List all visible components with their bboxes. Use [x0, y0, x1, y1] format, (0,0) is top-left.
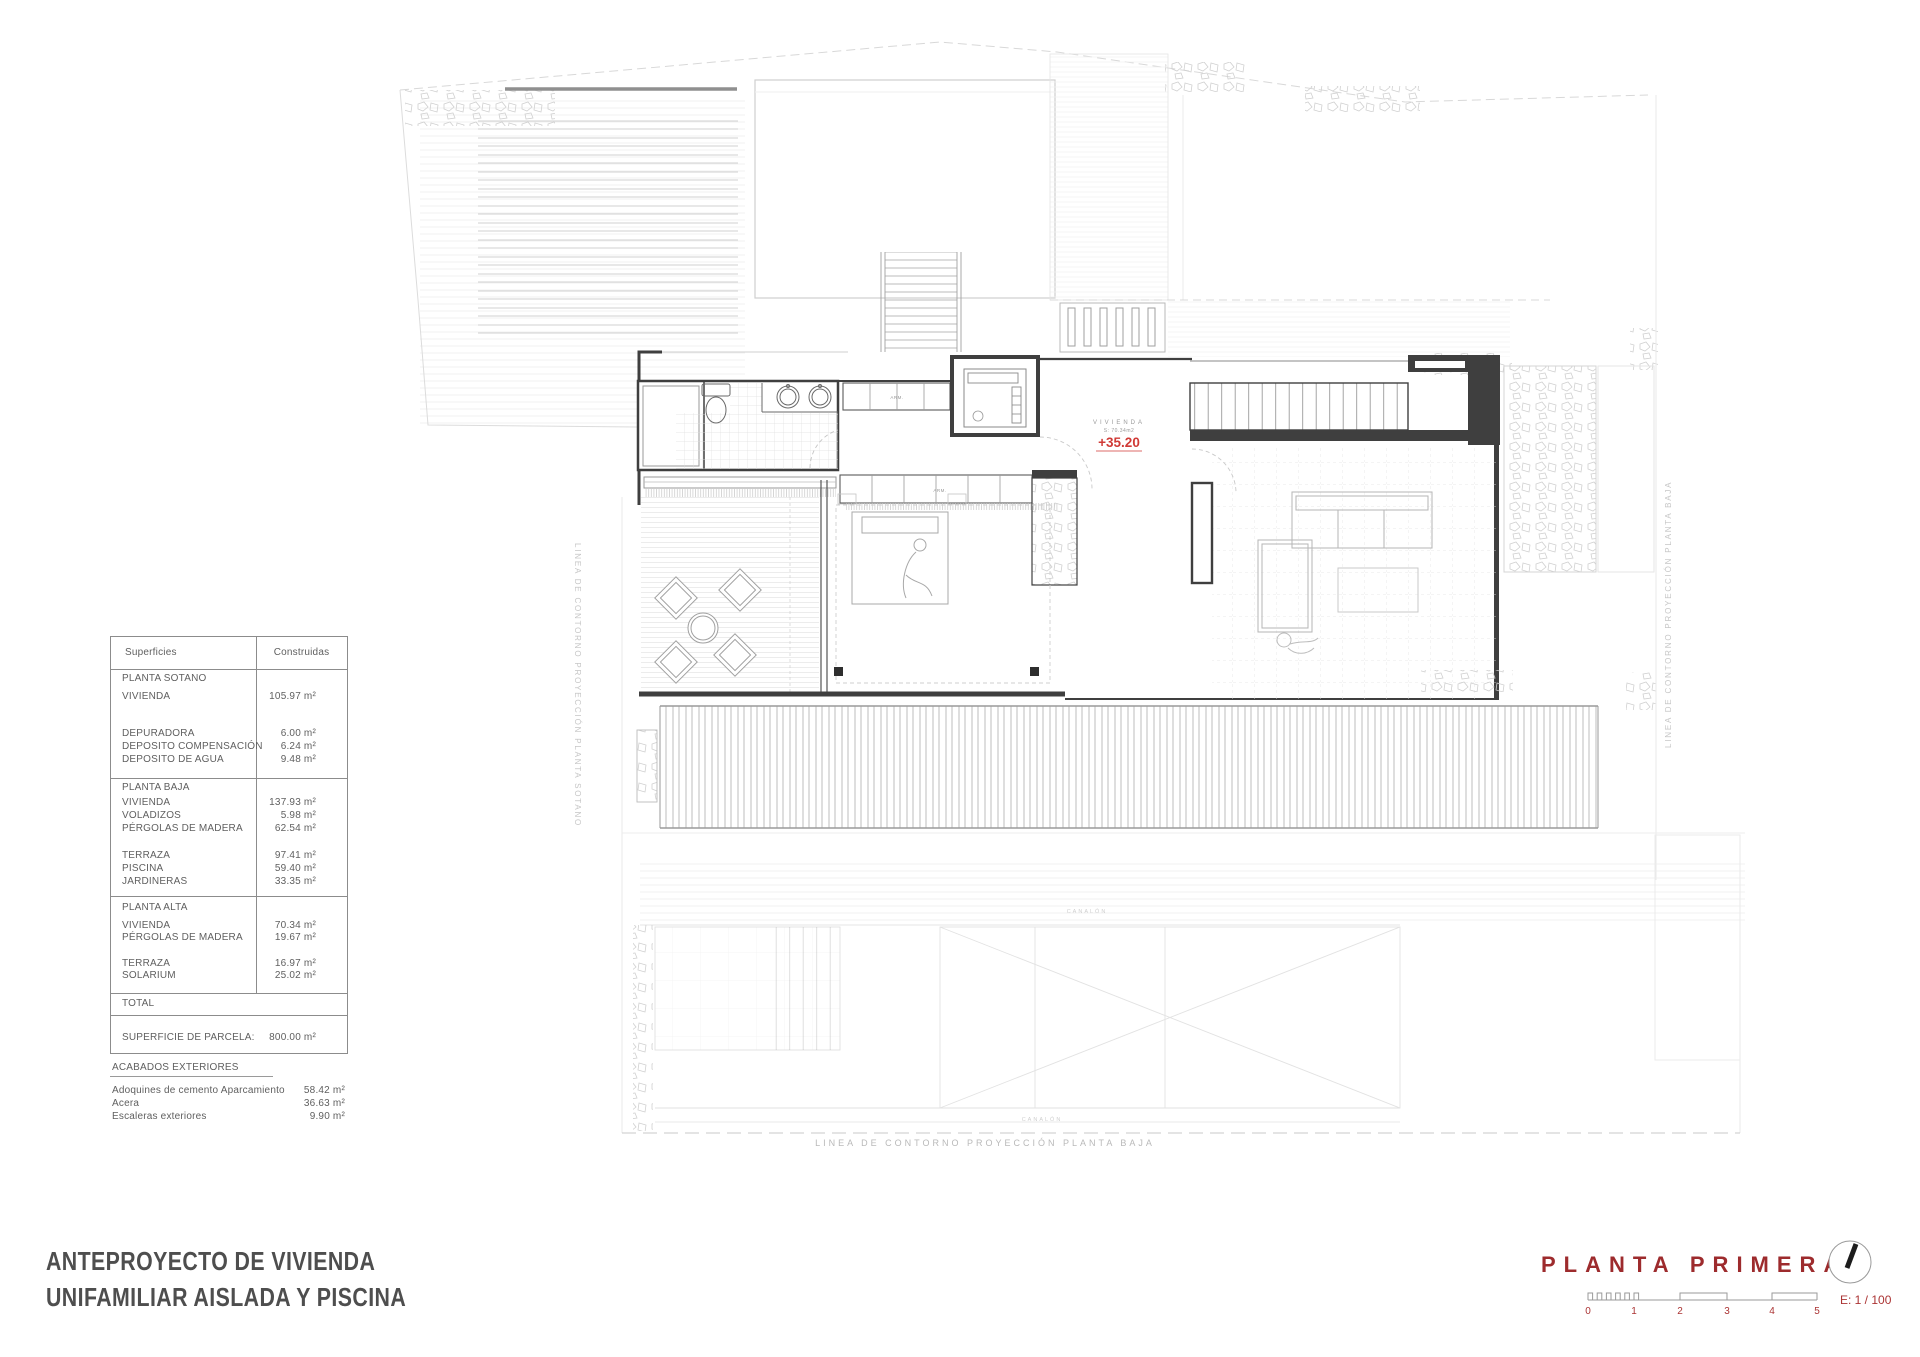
table-row: PLANTA BAJA [111, 782, 347, 795]
project-title-line1: ANTEPROYECTO DE VIVIENDA [46, 1243, 406, 1279]
bedroom [834, 494, 1050, 683]
table-row-total: TOTAL [111, 998, 347, 1011]
table-row: TERRAZA97.41 m² [111, 850, 347, 863]
pier [1192, 483, 1212, 583]
table-row: VIVIENDA105.97 m² [111, 691, 347, 704]
bed-icon [852, 512, 948, 604]
pergola-band [660, 706, 1598, 828]
wardrobe-top: ARM. [838, 381, 952, 410]
contour-label-right: LINEA DE CONTORNO PROYECCIÓN PLANTA BAJA [1664, 481, 1673, 748]
sheet-name: PLANTA PRIMERA [1541, 1252, 1847, 1278]
level-marker: VIVIENDA S: 70.34m2 +35.20 [1093, 420, 1145, 451]
exterior-stair [881, 252, 961, 352]
planter-right [1504, 366, 1596, 572]
scale-tick-2: 2 [1677, 1306, 1683, 1317]
table-row: DEPOSITO DE AGUA9.48 m² [111, 754, 347, 767]
first-floor-plan: ARM. ARM. [637, 352, 1654, 828]
scale-tick-0: 0 [1585, 1306, 1591, 1317]
table-header-construidas: Construidas [256, 647, 347, 658]
right-terrace [1192, 447, 1496, 699]
contour-label-left: LINEA DE CONTORNO PROYECCIÓN PLANTA SOTA… [573, 543, 582, 827]
acabados-exteriores: ACABADOS EXTERIORES Adoquines de cemento… [110, 1062, 346, 1077]
table-row: PISCINA59.40 m² [111, 863, 347, 876]
pergola-roof-slats [478, 118, 738, 340]
pool-projection [940, 927, 1400, 1108]
acabados-row: Adoquines de cemento Aparcamiento58.42 m… [110, 1085, 346, 1097]
table-row: DEPOSITO COMPENSACIÓN6.24 m² [111, 741, 347, 754]
table-row: DEPURADORA6.00 m² [111, 728, 347, 741]
level-marker-area: S: 70.34m2 [1104, 428, 1135, 434]
elevator-core [952, 357, 1038, 435]
gutter-label-bottom: CANALÓN [1022, 1116, 1063, 1123]
acabados-row: Escaleras exteriores9.90 m² [110, 1111, 346, 1123]
scale-tick-3: 3 [1724, 1306, 1730, 1317]
scale-segment-4-5 [1772, 1293, 1817, 1300]
acabados-row: Acera36.63 m² [110, 1098, 346, 1110]
drawing-sheet: ARM. ARM. [0, 0, 1920, 1357]
table-row: PÉRGOLAS DE MADERA62.54 m² [111, 823, 347, 836]
table-row: SOLARIUM25.02 m² [111, 970, 347, 983]
scale-label: E: 1 / 100 [1840, 1293, 1892, 1307]
planter-left-small [637, 730, 657, 802]
acabados-heading: ACABADOS EXTERIORES [110, 1062, 273, 1077]
planter-middle [1032, 470, 1077, 585]
bathroom [638, 381, 838, 470]
wardrobe-label: ARM. [933, 488, 946, 493]
contour-label-bottom: LINEA DE CONTORNO PROYECCIÓN PLANTA BAJA [815, 1138, 1155, 1148]
project-title-line2: UNIFAMILIAR AISLADA Y PISCINA [46, 1279, 406, 1315]
wardrobe-label: ARM. [890, 395, 903, 400]
scale-tick-5: 5 [1814, 1306, 1820, 1317]
interior-stairs [1190, 355, 1500, 445]
table-header-superficies: Superficies [125, 647, 177, 658]
project-title: ANTEPROYECTO DE VIVIENDA UNIFAMILIAR AIS… [46, 1243, 406, 1315]
gutter-label-top: CANALÓN [1067, 908, 1108, 915]
table-row-parcela: SUPERFICIE DE PARCELA:800.00 m² [111, 1032, 347, 1045]
table-row: PLANTA ALTA [111, 902, 347, 915]
table-row: PLANTA SOTANO [111, 673, 347, 686]
table-row: JARDINERAS33.35 m² [111, 876, 347, 889]
scale-tick-4: 4 [1769, 1306, 1775, 1317]
level-marker-room: VIVIENDA [1093, 420, 1145, 426]
table-row: VIVIENDA137.93 m² [111, 797, 347, 810]
deck-terrace [641, 480, 827, 692]
scale-teeth [1588, 1293, 1639, 1300]
table-row: VOLADIZOS5.98 m² [111, 810, 347, 823]
graphic-scale-bar: 0 1 2 3 4 5 E: 1 / 100 [1582, 1283, 1912, 1325]
surfaces-table: Superficies Construidas PLANTA SOTANO VI… [110, 636, 348, 1054]
level-marker-elevation: +35.20 [1098, 435, 1140, 450]
entry-pergola [1060, 303, 1165, 352]
table-row: PÉRGOLAS DE MADERA19.67 m² [111, 932, 347, 945]
scale-segment-2-3 [1680, 1293, 1727, 1300]
scale-tick-1: 1 [1631, 1306, 1637, 1317]
